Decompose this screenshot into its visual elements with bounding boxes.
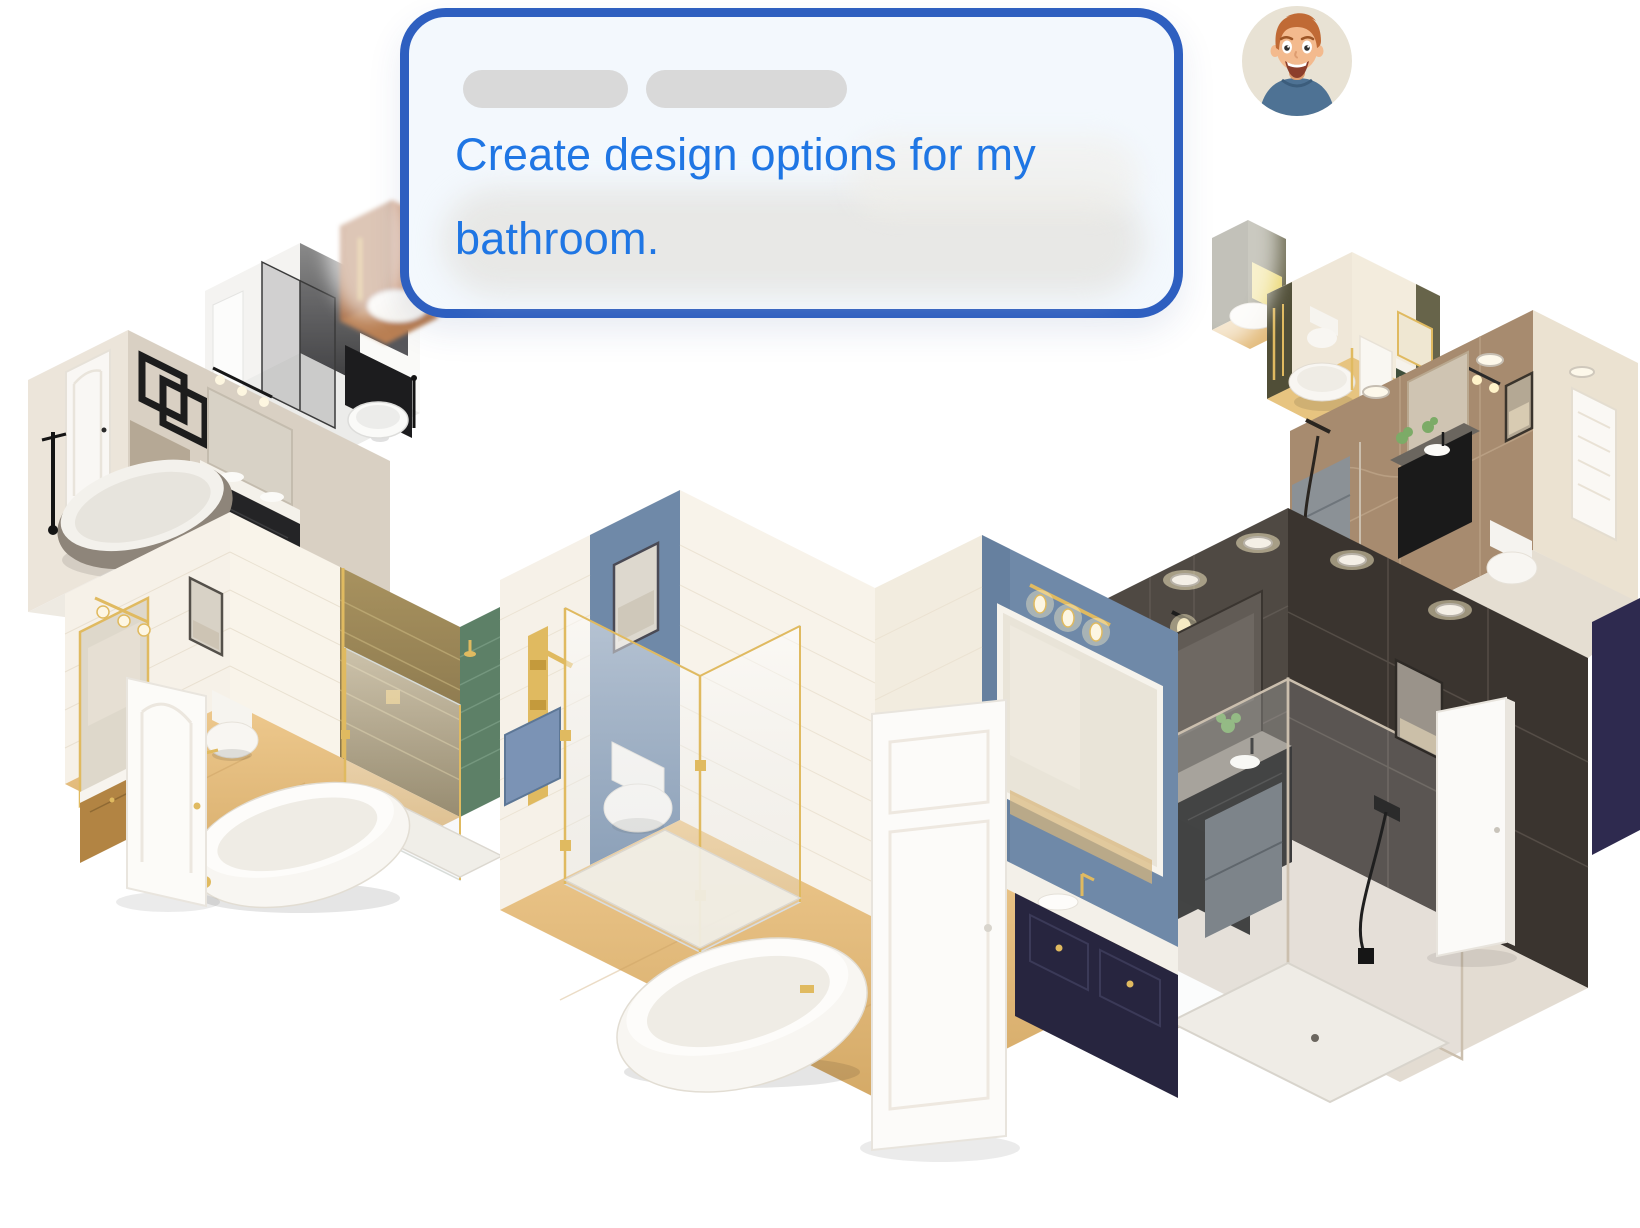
open-door: [116, 678, 220, 912]
prompt-text: Create design options for my bathroom.: [455, 113, 1115, 281]
room-blue-gold-bathroom: [500, 490, 1178, 1162]
skeleton-pill: [463, 70, 628, 108]
man-avatar-emoji-graphic: [1242, 6, 1352, 116]
hero-illustration: Create design options for my bathroom.: [0, 0, 1640, 1228]
prompt-card: Create design options for my bathroom.: [400, 8, 1183, 318]
man-avatar-emoji: [1242, 6, 1352, 116]
wall-art: [1506, 373, 1532, 441]
door: [1572, 388, 1616, 540]
door: [1427, 698, 1517, 967]
skeleton-pills: [463, 70, 847, 108]
shower-green-wall: [460, 606, 502, 817]
room-green-tile-gold-bathroom: [65, 512, 502, 928]
skeleton-pill: [646, 70, 847, 108]
purple-wall-fragment: [1592, 598, 1640, 855]
open-door: [860, 700, 1020, 1162]
